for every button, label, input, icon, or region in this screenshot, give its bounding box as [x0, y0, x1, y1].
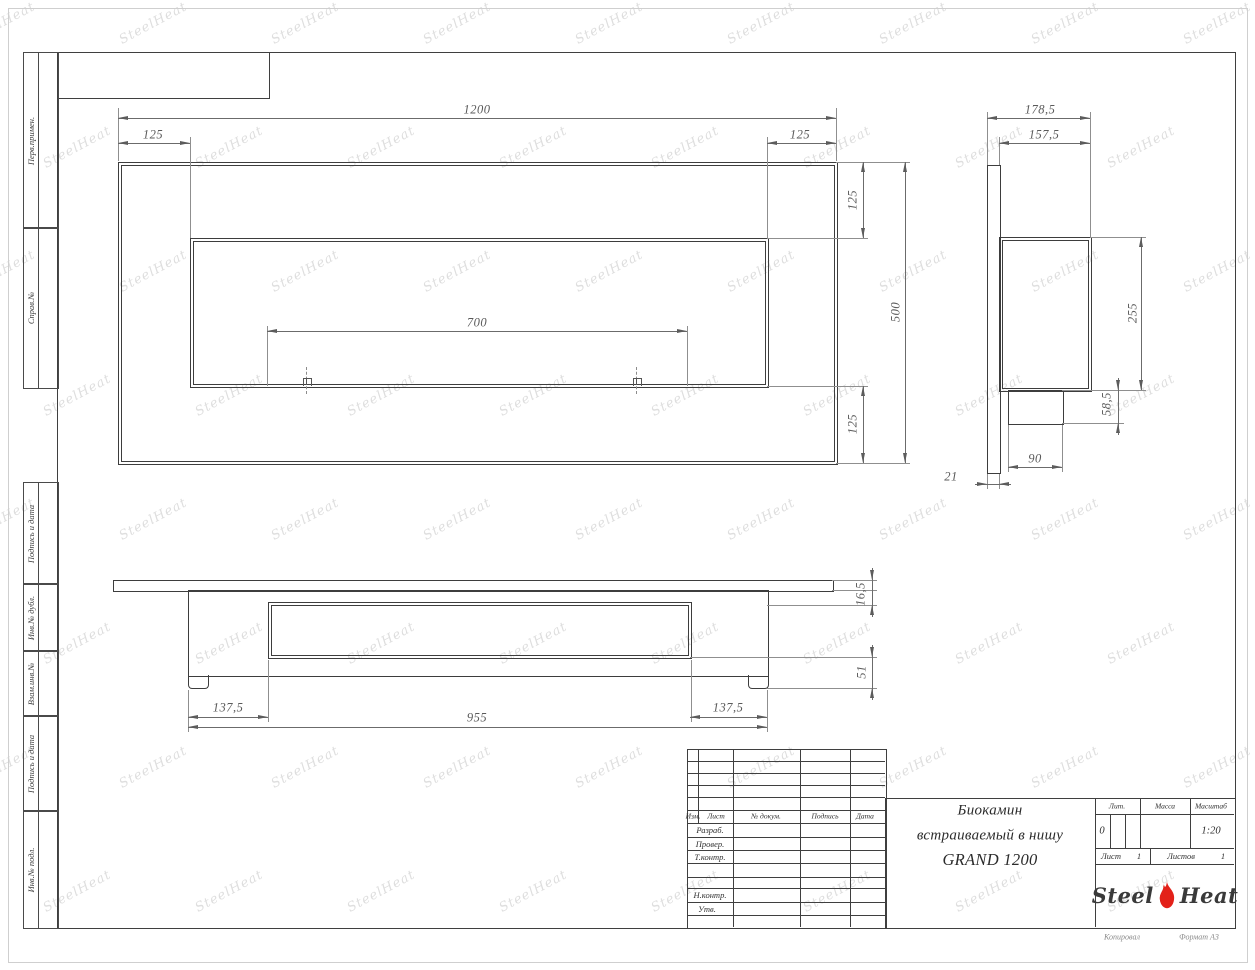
col-list: Лист	[707, 812, 725, 821]
margin-label: Инв.№ подл.	[26, 847, 36, 892]
bottom-opening	[268, 602, 692, 659]
margin-cell-vzam-inv: Взам.инв.№	[23, 650, 59, 717]
row-nkontr: Н.контр.	[694, 890, 727, 900]
bottom-foot-right	[748, 675, 769, 689]
margin-cell-inv-podl: Инв.№ подл.	[23, 810, 59, 929]
logo-steel-text: Steel	[1092, 883, 1154, 908]
dim-side-ledge-height: 58,5	[1100, 392, 1115, 416]
massa-label: Масса	[1155, 802, 1175, 811]
doc-title-line2: встраиваемый в нишу	[917, 828, 1063, 845]
row-tkontr: Т.контр.	[695, 852, 726, 862]
dim-front-right-inset: 125	[790, 128, 810, 143]
front-opening	[190, 238, 769, 388]
dim-side-body-height: 255	[1126, 303, 1141, 323]
list-value: 1	[1137, 851, 1141, 861]
margin-cell-podpis-data-1: Подпись и дата	[23, 482, 59, 585]
lit-label: Лит.	[1109, 802, 1125, 811]
steelheat-logo: Steel Heat	[1100, 872, 1230, 918]
margin-cell-perv-primen: Перв.примен.	[23, 52, 59, 229]
col-podpis: Подпись	[811, 812, 838, 821]
dim-front-burner-span: 700	[467, 316, 487, 331]
row-razrab: Разраб.	[696, 825, 723, 835]
doc-title-line3: GRAND 1200	[942, 850, 1037, 870]
col-izm: Изм.	[686, 812, 701, 821]
logo-heat-text: Heat	[1180, 883, 1239, 908]
format-note: Формат А3	[1179, 933, 1219, 942]
listov-label: Листов	[1167, 851, 1195, 861]
doc-title-line1: Биокамин	[958, 803, 1023, 820]
burner-mount-left	[303, 378, 312, 386]
dim-bottom-depth: 51	[855, 665, 870, 679]
dim-bottom-body-width: 955	[467, 711, 487, 726]
dim-side-depth-body: 157,5	[1029, 128, 1060, 143]
list-label: Лист	[1101, 851, 1121, 861]
margin-label: Инв.№ дубл.	[26, 595, 36, 639]
side-body	[999, 237, 1092, 392]
margin-cell-sprav-no: Справ.№	[23, 227, 59, 389]
dim-bottom-edge-right: 137,5	[713, 701, 744, 716]
top-left-doc-block	[57, 52, 270, 99]
dim-front-width: 1200	[464, 103, 491, 118]
margin-label: Подпись и дата	[26, 734, 36, 792]
margin-label: Перв.примен.	[26, 116, 36, 164]
flame-icon	[1156, 880, 1178, 910]
row-prover: Провер.	[696, 839, 724, 849]
dim-front-left-inset: 125	[143, 128, 163, 143]
dim-front-height: 500	[889, 302, 904, 322]
dim-side-panel-thickness: 21	[944, 470, 958, 485]
margin-label: Справ.№	[26, 292, 36, 324]
margin-label: Подпись и дата	[26, 504, 36, 562]
dim-side-depth-total: 178,5	[1025, 103, 1056, 118]
lit-value: 0	[1099, 826, 1104, 837]
burner-mount-right	[633, 378, 642, 386]
dim-bottom-panel-thickness: 16,5	[854, 582, 869, 606]
masshtab-label: Масштаб	[1195, 802, 1227, 811]
margin-label: Взам.инв.№	[26, 662, 36, 705]
dim-side-ledge-depth: 90	[1028, 452, 1042, 467]
listov-value: 1	[1221, 851, 1225, 861]
margin-cell-podpis-data-2: Подпись и дата	[23, 715, 59, 812]
col-doc: № докум.	[751, 812, 781, 821]
drawing-sheet: SteelHeatSteelHeatSteelHeatSteelHeatStee…	[0, 0, 1255, 970]
margin-cell-inv-dubl: Инв.№ дубл.	[23, 583, 59, 652]
side-ledge	[1008, 390, 1064, 425]
bottom-foot-left	[188, 675, 209, 689]
dim-front-bottom-inset: 125	[846, 414, 861, 434]
kopiroval-note: Копировал	[1104, 933, 1140, 942]
row-utv: Утв.	[698, 904, 716, 914]
col-data: Дата	[856, 812, 874, 821]
masshtab-value: 1:20	[1201, 826, 1220, 837]
dim-bottom-edge-left: 137,5	[213, 701, 244, 716]
dim-front-top-inset: 125	[846, 190, 861, 210]
